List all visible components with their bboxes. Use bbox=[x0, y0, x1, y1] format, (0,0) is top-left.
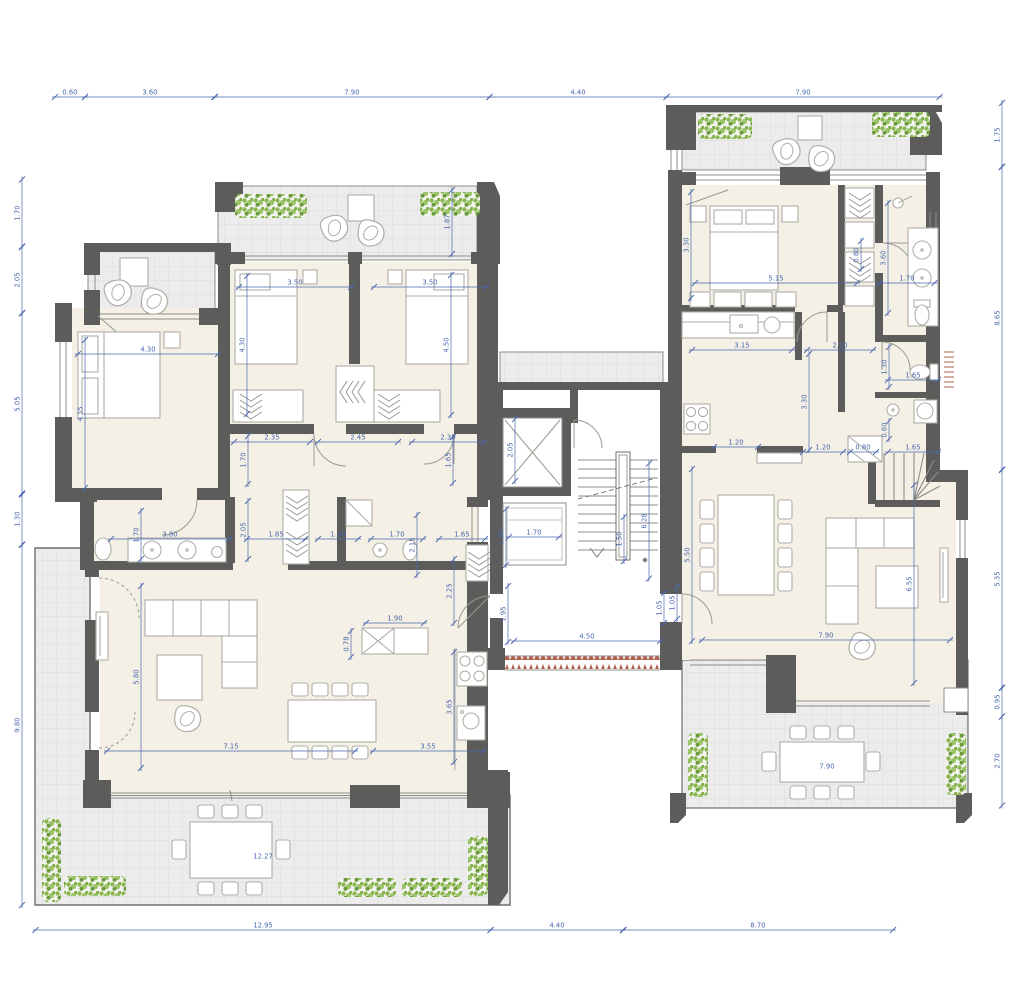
dimension-label: 3.15 bbox=[734, 342, 749, 350]
door-stair-corridor bbox=[574, 420, 602, 448]
dimension-label: 1.70 bbox=[133, 527, 141, 542]
dimension-label: 4.30 bbox=[140, 346, 155, 354]
dimension: 3.60 bbox=[82, 89, 218, 101]
dimension-label: 7.90 bbox=[795, 89, 810, 97]
dimension: 12.27 bbox=[253, 853, 272, 861]
dimension-label: 0.78 bbox=[343, 636, 351, 651]
nightstand bbox=[164, 332, 180, 348]
hatches bbox=[944, 352, 954, 387]
dimension-label: 3.50 bbox=[422, 279, 437, 287]
nightstand bbox=[782, 206, 798, 222]
dimension-label: 1.70 bbox=[526, 529, 541, 537]
terrace-step bbox=[944, 688, 968, 712]
dimension-label: 2.45 bbox=[350, 434, 365, 442]
dimension-label: 1.30 bbox=[330, 531, 345, 539]
dimension-label: 2.25 bbox=[446, 583, 454, 598]
dimension-label: 1.95 bbox=[500, 606, 508, 621]
dimension: 4.40 bbox=[488, 922, 627, 934]
floor-plan-page: 0.603.607.904.407.9012.954.408.701.702.0… bbox=[0, 0, 1024, 991]
exterior-hatch bbox=[944, 352, 954, 387]
dimension: 1.70 bbox=[14, 177, 26, 250]
sideboard-tv-living bbox=[96, 612, 108, 660]
terrace-hedge bbox=[402, 878, 462, 897]
dimension: 5.35 bbox=[994, 467, 1006, 691]
dimension: 0.60 bbox=[52, 89, 88, 101]
dimension-label: 1.65 bbox=[454, 531, 469, 539]
dimension-label: 7.90 bbox=[819, 763, 834, 771]
dimension-label: 1.70 bbox=[240, 452, 248, 467]
dimension-label: 2.15 bbox=[409, 537, 417, 552]
terrace-hedge bbox=[42, 818, 61, 902]
dimension-label: 1.75 bbox=[994, 127, 1002, 142]
dimension-label: 1.30 bbox=[881, 359, 889, 374]
dimension-label: 4.40 bbox=[570, 89, 585, 97]
dimension: 9.80 bbox=[14, 542, 26, 908]
terrace-hedge bbox=[64, 876, 126, 896]
dimension-label: 1.70 bbox=[899, 275, 914, 283]
dimension-label: 3.60 bbox=[142, 89, 157, 97]
dimension: 1.30 bbox=[14, 491, 26, 548]
planter-hedge bbox=[698, 114, 752, 139]
dimension-label: 0.60 bbox=[881, 422, 889, 437]
stair-direction-arrow-icon bbox=[590, 548, 604, 557]
terrace-hedge bbox=[946, 733, 966, 795]
dimension-label: 5.35 bbox=[994, 571, 1002, 586]
window-right-terrace-left bbox=[696, 175, 780, 180]
dimension-label: 2.70 bbox=[994, 753, 1002, 768]
wardrobe-right-unit bbox=[845, 188, 874, 306]
dining-table-left-unit bbox=[288, 683, 376, 759]
terrace-hedge bbox=[338, 878, 396, 897]
nightstand bbox=[690, 206, 706, 222]
dimension-label: 2.05 bbox=[14, 272, 22, 287]
dimension-label: 1.87 bbox=[444, 214, 452, 229]
dimension: 1.05 bbox=[656, 590, 668, 626]
wardrobe-bedroom2 bbox=[233, 390, 303, 422]
dimension-label: 2.05 bbox=[240, 522, 248, 537]
dimension-label: 0.60 bbox=[62, 89, 77, 97]
dimension: 0.95 bbox=[994, 685, 1006, 720]
window-right-west-upper bbox=[671, 150, 677, 170]
wardrobe-corridor bbox=[283, 490, 309, 564]
dimension-label: 1.65 bbox=[445, 452, 453, 467]
dimension-label: 1.90 bbox=[498, 529, 506, 544]
dimension: 5.05 bbox=[14, 311, 26, 498]
dimension: 7.90 bbox=[664, 89, 943, 101]
dimension-label: 4.50 bbox=[443, 337, 451, 352]
dimension-label: 3.65 bbox=[446, 699, 454, 714]
dimension-label: 1.70 bbox=[389, 531, 404, 539]
dimension-label: 1.65 bbox=[905, 444, 920, 452]
dimension-label: 9.80 bbox=[14, 717, 22, 732]
dimension-label: 1.20 bbox=[728, 439, 743, 447]
dimension-label: 5.50 bbox=[684, 547, 692, 562]
planter-hedge bbox=[235, 194, 307, 218]
dimension-label: 3.50 bbox=[287, 279, 302, 287]
dimension-label: 1.05 bbox=[656, 600, 664, 615]
dimension-label: 2.35 bbox=[264, 434, 279, 442]
dimension: 12.95 bbox=[33, 922, 494, 934]
dimension-label: 3.30 bbox=[683, 237, 691, 252]
closet-living bbox=[362, 628, 428, 654]
dimension: 6.28 bbox=[641, 461, 653, 582]
dimension-label: 4.40 bbox=[549, 922, 564, 930]
dimension-label: 0.80 bbox=[855, 444, 870, 452]
dimension: 4.40 bbox=[487, 89, 670, 101]
dimension: 2.70 bbox=[994, 714, 1006, 809]
dimension-label: 7.15 bbox=[223, 743, 238, 751]
dimension: 4.50 bbox=[511, 633, 663, 645]
terrace-hedge bbox=[688, 733, 708, 797]
floor-plan-drawing: 0.603.607.904.407.9012.954.408.701.702.0… bbox=[0, 0, 1024, 991]
dimension-label: 0.80 bbox=[853, 247, 861, 262]
dimension-label: 0.95 bbox=[994, 694, 1002, 709]
dimension-label: 2.05 bbox=[507, 442, 515, 457]
dimension-label: 4.50 bbox=[579, 633, 594, 641]
dimension-label: 7.90 bbox=[818, 632, 833, 640]
tv-right-unit bbox=[940, 548, 948, 602]
dimension-label: 12.27 bbox=[253, 853, 272, 861]
dimension-label: 5.15 bbox=[768, 275, 783, 283]
dimension-label: 6.28 bbox=[641, 513, 649, 528]
dimension-label: 6.55 bbox=[906, 576, 914, 591]
core-bridge-walkway bbox=[500, 352, 663, 385]
nightstand bbox=[303, 270, 317, 284]
dimension-label: 1.85 bbox=[268, 531, 283, 539]
planter-hedge bbox=[872, 112, 930, 137]
dimension-label: 3.80 bbox=[162, 531, 177, 539]
terrace-hedge bbox=[468, 836, 488, 896]
dimension-label: 5.80 bbox=[133, 669, 141, 684]
dimension: 8.65 bbox=[994, 164, 1006, 473]
dimension: 7.90 bbox=[819, 763, 834, 771]
dimension: 2.05 bbox=[14, 244, 26, 316]
entry-mat-hatch bbox=[505, 656, 660, 669]
terrace-side-table bbox=[348, 195, 374, 221]
dimension-label: 1.05 bbox=[669, 595, 677, 610]
dimension: 8.70 bbox=[620, 922, 896, 934]
dimension-label: 4.30 bbox=[239, 337, 247, 352]
window-right-east-lower bbox=[960, 520, 965, 558]
dimension-label: 8.65 bbox=[994, 310, 1002, 325]
dimension-label: 1.70 bbox=[14, 205, 22, 220]
window-right-terrace-right bbox=[830, 175, 926, 180]
dimension-label: 2.10 bbox=[832, 342, 847, 350]
dimension-label: 12.95 bbox=[253, 922, 272, 930]
dimension-label: 3.55 bbox=[420, 743, 435, 751]
wardrobe-bedroom3 bbox=[370, 390, 440, 422]
dimension-label: 1.30 bbox=[14, 511, 22, 526]
coffee-table bbox=[157, 655, 202, 700]
window-master-west bbox=[60, 342, 66, 417]
dimension-label: 3.60 bbox=[880, 250, 888, 265]
dimension: 7.90 bbox=[212, 89, 493, 101]
nightstand bbox=[388, 270, 402, 284]
dimension-label: 1.90 bbox=[387, 615, 402, 623]
dimension-label: 8.70 bbox=[750, 922, 765, 930]
dimension-label: 1.65 bbox=[905, 372, 920, 380]
dimension: 1.75 bbox=[994, 100, 1006, 170]
dimension-label: 1.50 bbox=[616, 531, 624, 546]
planter-hedge bbox=[420, 192, 480, 216]
terrace-side-table bbox=[798, 116, 822, 140]
dimension-label: 4.35 bbox=[77, 406, 85, 421]
dimension-label: 7.90 bbox=[344, 89, 359, 97]
dimension-label: 3.30 bbox=[801, 394, 809, 409]
dimension-label: 5.05 bbox=[14, 396, 22, 411]
dimension-label: 1.20 bbox=[815, 444, 830, 452]
